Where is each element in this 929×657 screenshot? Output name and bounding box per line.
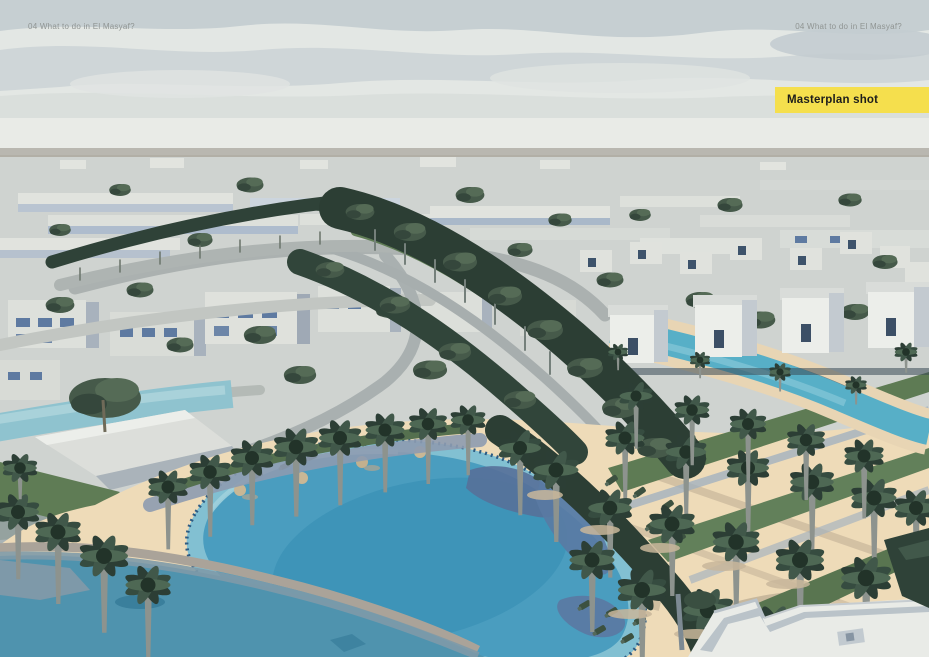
brochure-page: 04 What to do in El Masyaf? 04 What to d… — [0, 0, 929, 657]
masterplan-shot-label: Masterplan shot — [775, 87, 929, 113]
masterplan-shot-label-text: Masterplan shot — [787, 94, 878, 106]
page-header-left: 04 What to do in El Masyaf? — [28, 22, 135, 31]
sky — [0, 0, 929, 165]
page-header-right: 04 What to do in El Masyaf? — [795, 22, 902, 31]
